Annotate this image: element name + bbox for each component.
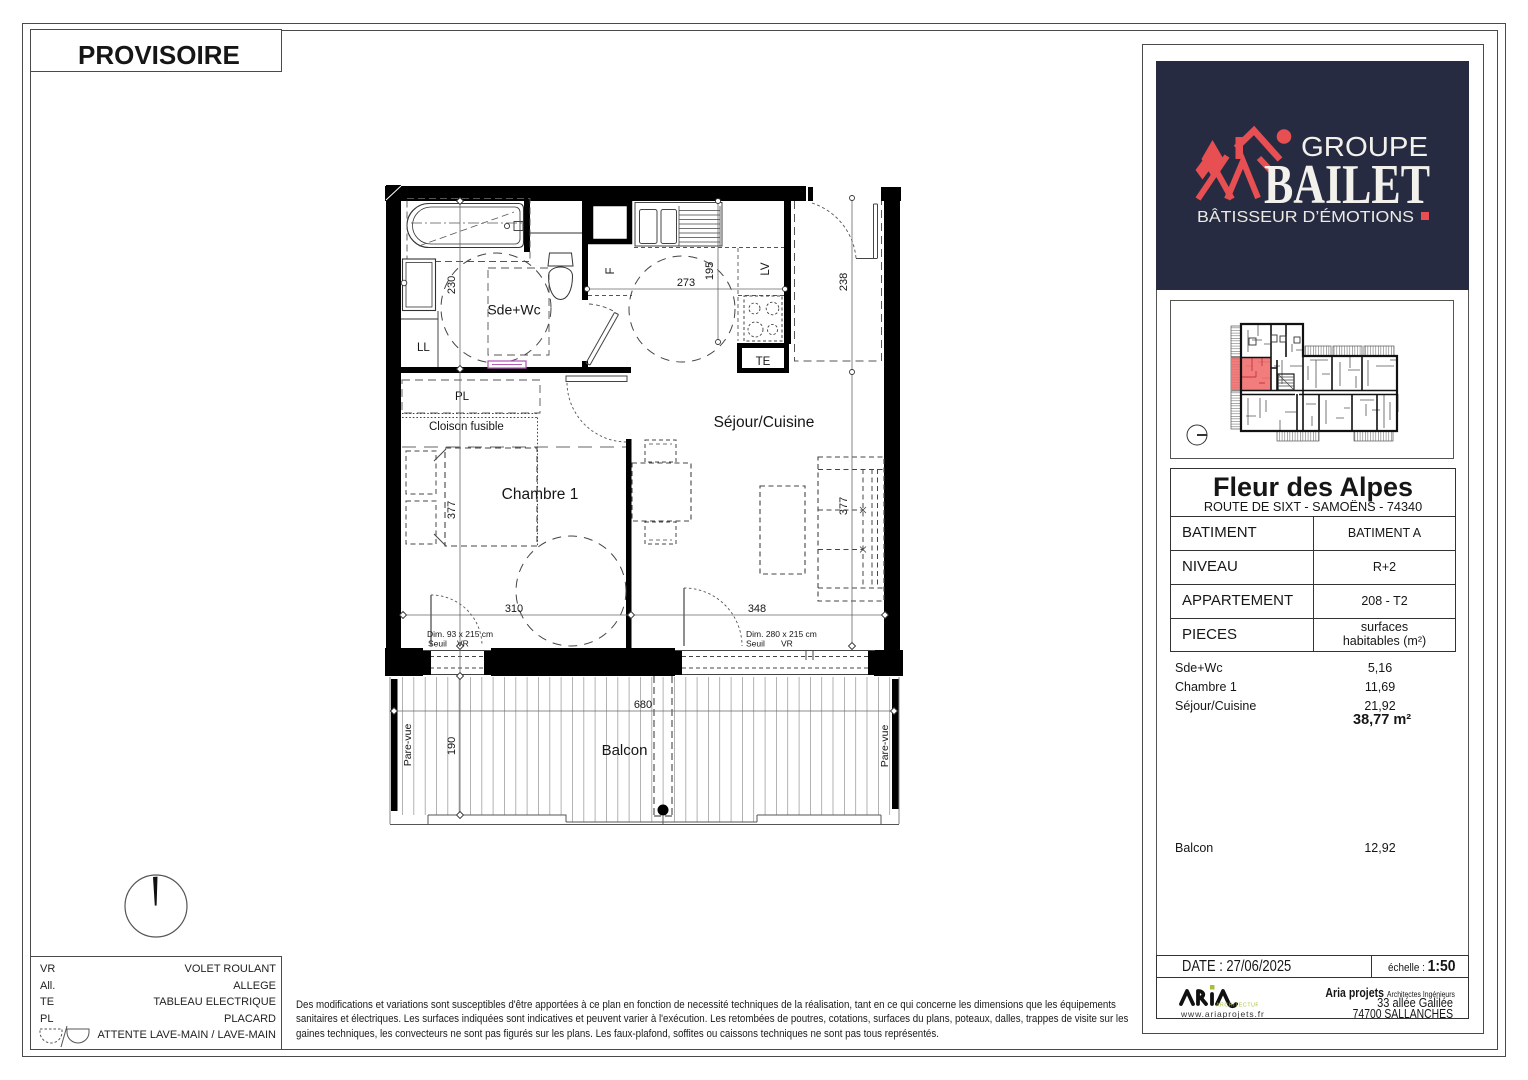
svg-text:680: 680 [634,699,652,711]
svg-text:PL: PL [455,391,470,403]
svg-text:Pare-vue: Pare-vue [879,725,891,768]
svg-text:F: F [605,267,617,274]
svg-text:310: 310 [505,603,523,615]
svg-text:BAILET: BAILET [1264,154,1430,216]
svg-text:Seuil: Seuil [746,639,765,649]
svg-text:VR: VR [457,639,469,649]
svg-text:Séjour/Cuisine: Séjour/Cuisine [714,414,815,431]
svg-text:195: 195 [704,262,716,280]
svg-text:TE: TE [756,356,771,368]
svg-text:230: 230 [446,276,458,294]
svg-text:238: 238 [838,273,850,291]
svg-text:Sde+Wc: Sde+Wc [487,302,540,318]
svg-text:Chambre 1: Chambre 1 [502,486,579,503]
svg-text:190: 190 [446,737,458,755]
svg-text:348: 348 [748,603,766,615]
svg-text:Cloison fusible: Cloison fusible [429,421,504,433]
svg-text:ARCHITECTURE: ARCHITECTURE [1216,1003,1258,1009]
svg-text:Balcon: Balcon [602,742,648,759]
svg-text:Dim. 93 x 215 cm: Dim. 93 x 215 cm [427,629,493,639]
svg-text:Dim. 280 x 215 cm: Dim. 280 x 215 cm [746,629,817,639]
svg-text:LV: LV [760,262,772,276]
svg-text:273: 273 [677,277,695,289]
svg-text:BÂTISSEUR D’ÉMOTIONS: BÂTISSEUR D’ÉMOTIONS [1197,209,1414,226]
svg-text:377: 377 [838,497,850,515]
svg-text:Pare-vue: Pare-vue [402,724,414,767]
svg-text:377: 377 [446,501,458,519]
svg-text:VR: VR [781,639,793,649]
svg-text:Seuil: Seuil [428,639,447,649]
svg-text:LL: LL [417,342,430,354]
